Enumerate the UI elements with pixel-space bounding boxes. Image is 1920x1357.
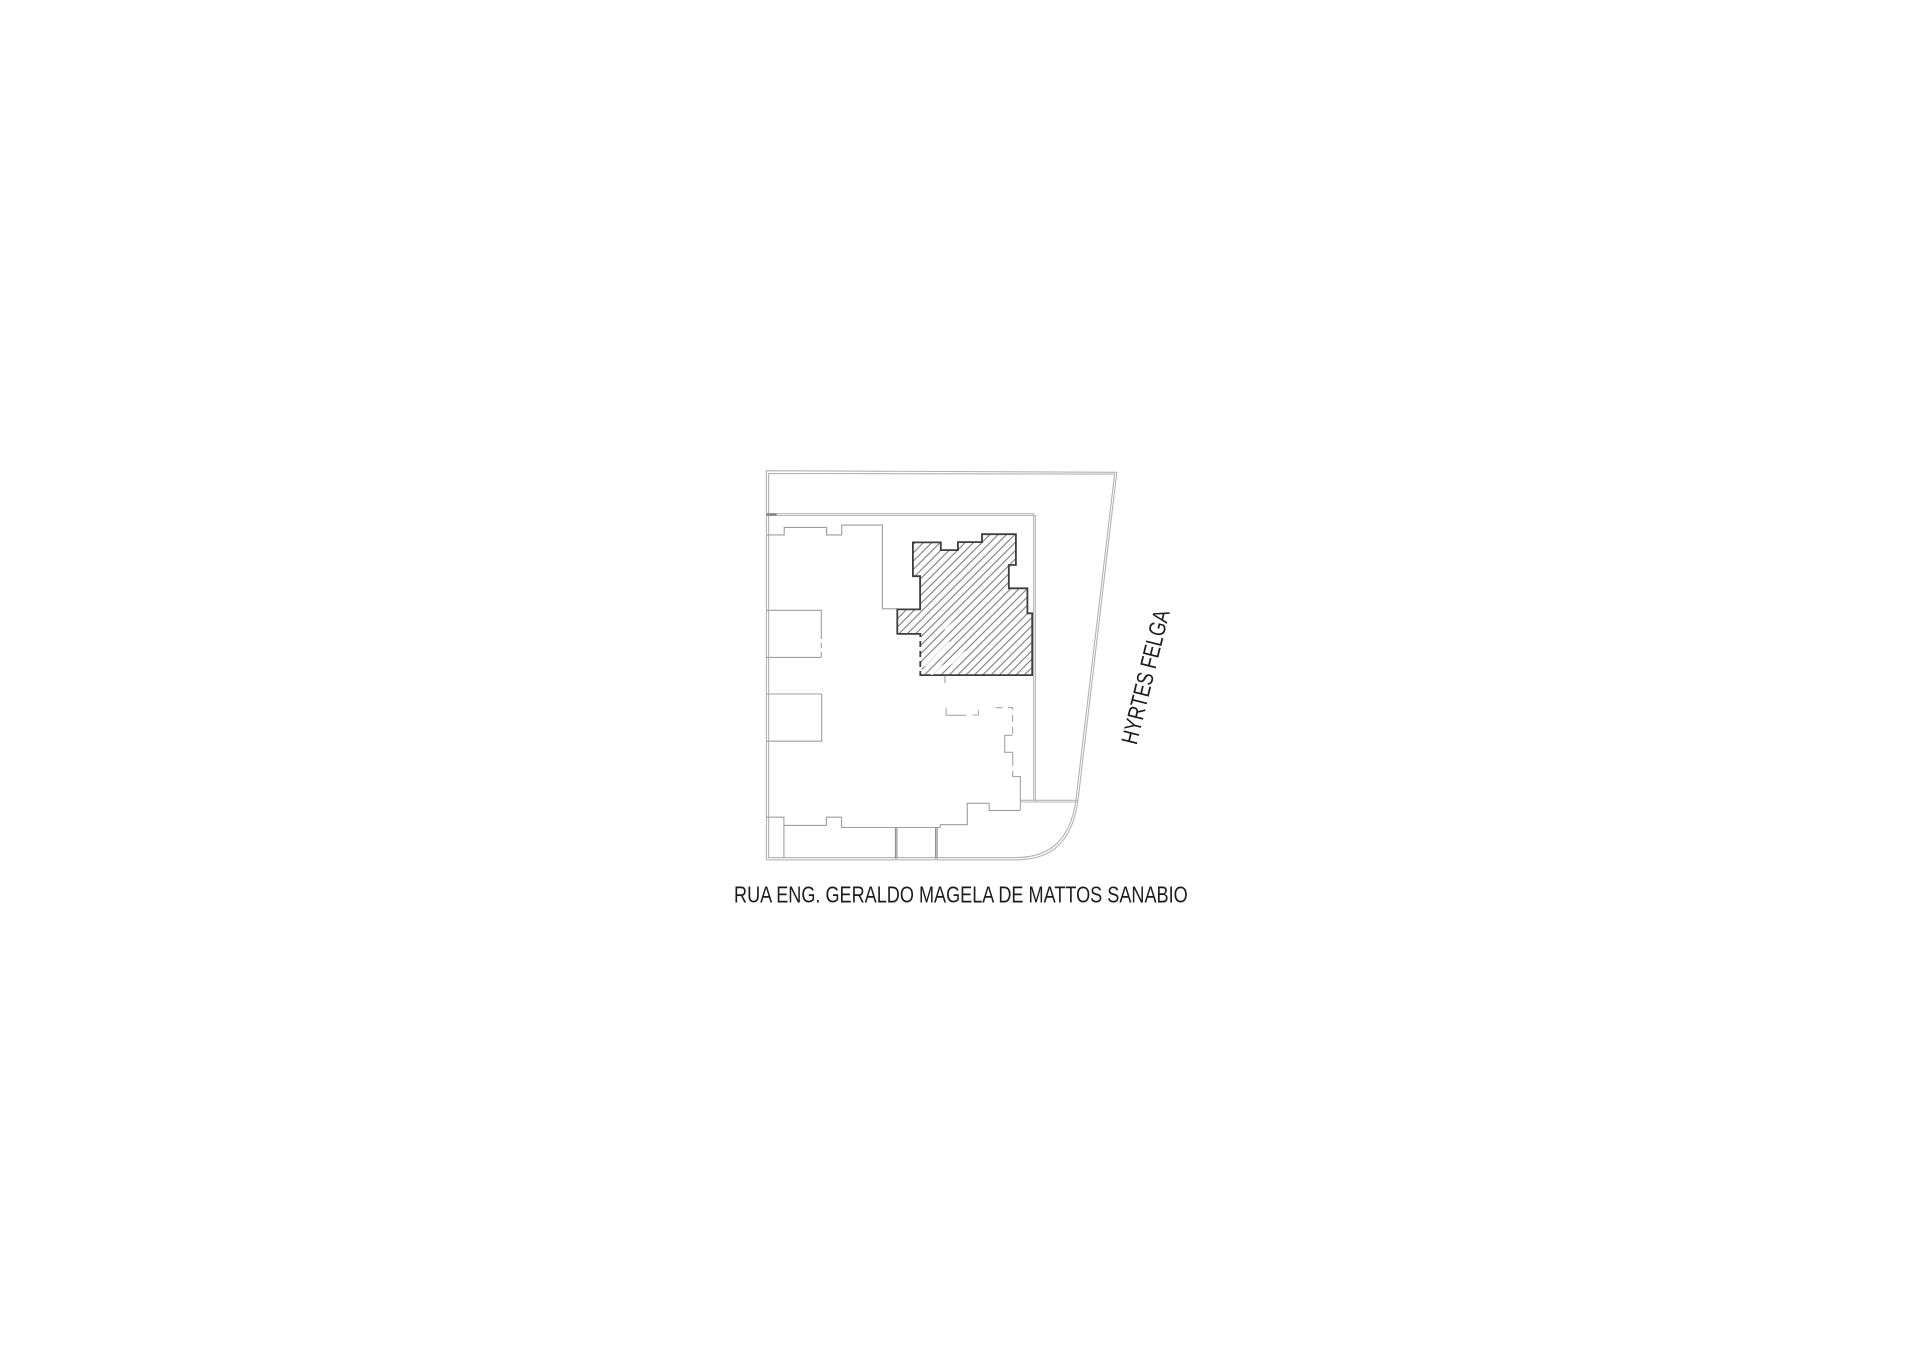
svg-text:HYRTES FELGA: HYRTES FELGA <box>1117 607 1175 747</box>
svg-text:RUA ENG. GERALDO MAGELA DE MAT: RUA ENG. GERALDO MAGELA DE MATTOS SANABI… <box>734 882 1188 908</box>
